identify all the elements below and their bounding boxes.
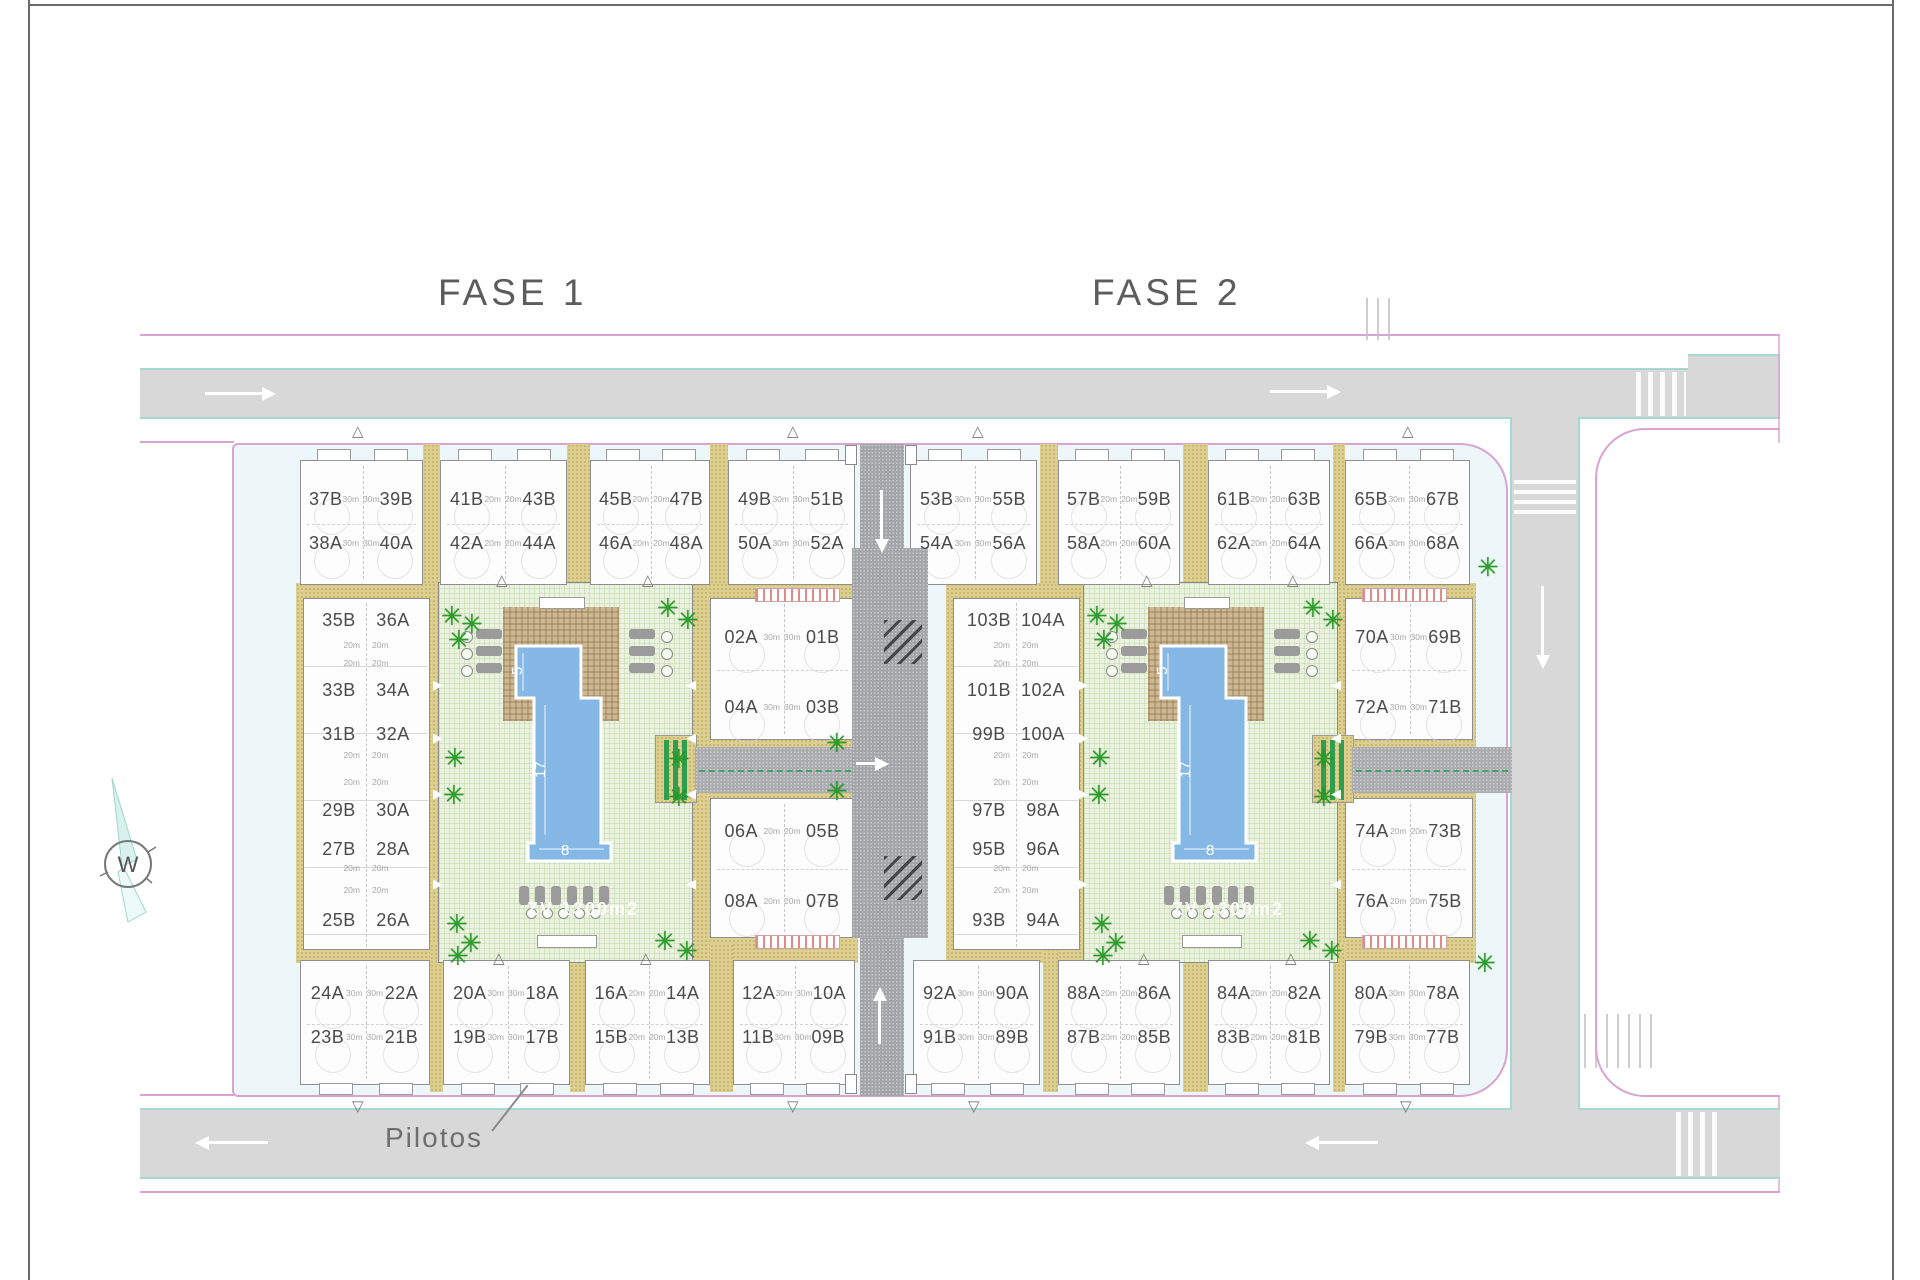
paving [1043, 944, 1058, 1092]
area-labels: 20m20m [1390, 896, 1427, 906]
pool-water [1161, 646, 1256, 861]
porch-icon [990, 1083, 1024, 1095]
pool-water [516, 646, 611, 861]
parking-marking [755, 588, 840, 602]
block-divider [505, 466, 506, 579]
area-label: 30m [1388, 494, 1405, 504]
unit-label: 95B [962, 839, 1016, 860]
gate-icon [433, 877, 443, 890]
porch-icon [374, 449, 408, 461]
unit-label: 37B [309, 489, 343, 510]
area-row: 20m20m [954, 639, 1078, 651]
unit-label: 29B [312, 800, 366, 821]
paving [423, 444, 440, 584]
area-label: 20m [1411, 826, 1428, 836]
paving [1040, 444, 1058, 584]
unit-label: 56A [992, 533, 1027, 554]
gate-icon [496, 573, 508, 588]
area-labels: 20m20m [1101, 538, 1138, 548]
pool-dimension: 5 [509, 667, 526, 675]
unit-row: 12A30m30m10A [734, 981, 853, 1005]
area-label: 20m [1101, 494, 1118, 504]
paving [710, 944, 733, 1092]
area-label: 30m [975, 538, 992, 548]
palm-icon [676, 938, 698, 964]
unit-label: 94A [1016, 910, 1070, 931]
unit-row: 15B20m20m13B [586, 1025, 708, 1049]
unit-label: 20A [452, 983, 487, 1004]
gate-icon [787, 424, 799, 439]
unit-label: 83B [1217, 1027, 1251, 1048]
porch-icon [750, 1083, 784, 1095]
area-labels: 30m30m [772, 494, 809, 504]
area-label: 20m [343, 863, 360, 873]
unit-block: 80A30m30m78A79B30m30m77B [1345, 960, 1470, 1085]
block-divider [1352, 524, 1463, 525]
paving [710, 444, 728, 584]
unit-label: 71B [1427, 697, 1463, 718]
area-label: 20m [1022, 658, 1039, 668]
strip-block: 103B104A101B102A99B100A97B98A95B96A93B94… [953, 598, 1080, 950]
area-label: 30m [343, 494, 360, 504]
area-label: 30m [508, 988, 525, 998]
area-label: 20m [1101, 1032, 1118, 1042]
area-label: 20m [628, 988, 645, 998]
unit-label: 01B [801, 627, 845, 648]
gate-icon [1078, 787, 1088, 800]
unit-label: 49B [737, 489, 772, 510]
unit-row: 83B20m20m81B [1209, 1025, 1328, 1049]
unit-row: 88A20m20m86A [1059, 981, 1178, 1005]
block-divider [447, 524, 560, 525]
unit-block: 92A30m30m90A91B30m30m89B [913, 960, 1040, 1085]
area-labels: 20m20m [1251, 538, 1288, 548]
area-label: 30m [957, 1032, 974, 1042]
unit-label: 101B [962, 680, 1016, 701]
lounger [1274, 663, 1300, 673]
unit-label: 86A [1138, 983, 1172, 1004]
gate-icon [1287, 573, 1299, 588]
site-plan: FASE 1 FASE 2 5178ZV 1300m235B36A33B34A3… [0, 0, 1920, 1280]
unit-block: 37B30m30m39B38A30m30m40A [300, 460, 423, 585]
block-divider [1120, 466, 1121, 579]
porch-icon [1281, 449, 1315, 461]
area-label: 20m [1251, 494, 1268, 504]
road-post [845, 445, 857, 465]
unit-label: 43B [522, 489, 557, 510]
unit-label: 87B [1067, 1027, 1101, 1048]
porch-icon [1225, 449, 1259, 461]
unit-label: 51B [810, 489, 845, 510]
block-divider [307, 524, 416, 525]
area-label: 20m [649, 988, 666, 998]
gate-icon [1138, 951, 1150, 966]
palm-icon [668, 746, 690, 772]
area-label: 20m [649, 1032, 666, 1042]
unit-label: 45B [599, 489, 633, 510]
area-row: 20m20m [304, 639, 428, 651]
unit-label: 72A [1354, 697, 1390, 718]
unit-label: 08A [719, 891, 763, 912]
walkway [1352, 747, 1512, 793]
unit-label: 58A [1067, 533, 1101, 554]
area-label: 20m [653, 494, 670, 504]
unit-label: 90A [995, 983, 1030, 1004]
area-label: 30m [1388, 1032, 1405, 1042]
porch-icon [806, 1083, 840, 1095]
lounger [476, 663, 502, 673]
area-label: 20m [628, 1032, 645, 1042]
unit-label: 50A [737, 533, 772, 554]
unit-label: 76A [1354, 891, 1390, 912]
unit-label: 92A [922, 983, 957, 1004]
unit-row: 99B100A [954, 722, 1078, 746]
unit-row: 61B20m20m63B [1209, 487, 1328, 511]
unit-row: 80A30m30m78A [1346, 981, 1468, 1005]
unit-label: 30A [366, 800, 420, 821]
palm-icon [826, 778, 848, 804]
palm-icon [448, 627, 470, 653]
unit-label: 69B [1427, 627, 1463, 648]
unit-row: 53B30m30m55B [911, 487, 1035, 511]
unit-row: 24A30m30m22A [301, 981, 428, 1005]
porch-icon [461, 1083, 495, 1095]
unit-label: 81B [1288, 1027, 1322, 1048]
unit-label: 84A [1217, 983, 1251, 1004]
area-label: 20m [1121, 538, 1138, 548]
porch-icon [805, 449, 839, 461]
unit-label: 68A [1426, 533, 1460, 554]
area-label: 30m [957, 988, 974, 998]
area-labels: 30m30m [954, 494, 991, 504]
block-divider [1215, 524, 1323, 525]
unit-row: 16A20m20m14A [586, 981, 708, 1005]
unit-block: 53B30m30m55B54A30m30m56A [910, 460, 1037, 585]
unit-row: 46A20m20m48A [591, 531, 708, 555]
unit-row: 25B26A [304, 908, 428, 932]
unit-row: 103B104A [954, 608, 1078, 632]
unit-label: 03B [801, 697, 845, 718]
area-label: 20m [1121, 1032, 1138, 1042]
unit-row: 08A20m20m07B [711, 889, 853, 913]
area-labels: 30m30m [343, 538, 380, 548]
area-label: 30m [763, 702, 780, 712]
unit-row: 42A20m20m44A [441, 531, 565, 555]
unit-label: 73B [1427, 821, 1463, 842]
unit-row: 97B98A [954, 798, 1078, 822]
gate-icon [1331, 731, 1341, 744]
unit-label: 103B [962, 610, 1016, 631]
area-label: 20m [1271, 538, 1288, 548]
gate-icon [433, 731, 443, 744]
garden: 5178ZV 1300m2 [1083, 582, 1338, 963]
unit-label: 39B [380, 489, 414, 510]
area-label: 20m [993, 777, 1010, 787]
palm-icon [1093, 627, 1115, 653]
gate-icon [787, 1099, 799, 1114]
block-divider [363, 466, 364, 579]
area-label: 30m [1409, 988, 1426, 998]
porch-icon [319, 1083, 353, 1095]
area-row: 20m20m [954, 776, 1078, 788]
area-label: 30m [1409, 1032, 1426, 1042]
area-label: 30m [772, 538, 789, 548]
area-label: 20m [993, 640, 1010, 650]
area-label: 20m [993, 658, 1010, 668]
unit-label: 38A [309, 533, 343, 554]
compass: W [62, 768, 232, 948]
area-labels: 30m30m [954, 538, 991, 548]
area-label: 20m [633, 494, 650, 504]
area-label: 20m [1022, 885, 1039, 895]
area-label: 30m [343, 538, 360, 548]
area-label: 20m [993, 863, 1010, 873]
unit-row: 41B20m20m43B [441, 487, 565, 511]
area-label: 20m [1390, 896, 1407, 906]
unit-label: 09B [811, 1027, 845, 1048]
lounger [1274, 646, 1300, 656]
lounger [1121, 646, 1147, 656]
area-label: 30m [487, 1032, 504, 1042]
unit-row: 87B20m20m85B [1059, 1025, 1178, 1049]
porch-icon [1075, 449, 1109, 461]
lounger [1274, 629, 1300, 639]
pool-dimension: 8 [561, 842, 569, 859]
porch-icon [1363, 1083, 1397, 1095]
unit-label: 53B [919, 489, 954, 510]
parking-marking [1362, 588, 1447, 602]
area-label: 20m [784, 896, 801, 906]
unit-label: 48A [670, 533, 704, 554]
unit-label: 55B [992, 489, 1027, 510]
unit-row: 72A30m30m71B [1346, 695, 1471, 719]
gate-icon [1141, 573, 1153, 588]
area-label: 20m [343, 658, 360, 668]
paving [1183, 944, 1208, 1092]
unit-label: 05B [801, 821, 845, 842]
pool-dimension: 17 [1177, 761, 1194, 778]
unit-label: 04A [719, 697, 763, 718]
unit-label: 21B [383, 1027, 420, 1048]
gate-icon [686, 731, 696, 744]
area-label: 20m [1121, 988, 1138, 998]
unit-label: 64A [1288, 533, 1322, 554]
unit-label: 93B [962, 910, 1016, 931]
block-divider [1352, 869, 1466, 870]
gate-icon [352, 424, 364, 439]
unit-block: 02A30m30m01B04A30m30m03B [710, 598, 855, 740]
block-divider [735, 524, 848, 525]
road-post [905, 445, 917, 465]
area-row: 20m20m [954, 884, 1078, 896]
unit-label: 22A [383, 983, 420, 1004]
unit-label: 74A [1354, 821, 1390, 842]
area-row: 20m20m [954, 749, 1078, 761]
unit-label: 28A [366, 839, 420, 860]
unit-row: 02A30m30m01B [711, 625, 853, 649]
area-label: 20m [784, 826, 801, 836]
unit-label: 13B [666, 1027, 700, 1048]
gate-icon [686, 877, 696, 890]
area-labels: 20m20m [1101, 1032, 1138, 1042]
area-label: 30m [1388, 988, 1405, 998]
area-label: 20m [484, 494, 501, 504]
parking-marking [1362, 935, 1447, 949]
unit-label: 15B [594, 1027, 628, 1048]
road-post [845, 1074, 857, 1094]
porch-icon [1075, 1083, 1109, 1095]
palm-icon [1092, 943, 1114, 969]
area-label: 30m [954, 538, 971, 548]
unit-label: 80A [1354, 983, 1388, 1004]
unit-block: 20A30m30m18A19B30m30m17B [443, 960, 570, 1085]
unit-label: 26A [366, 910, 420, 931]
porch-icon [1225, 1083, 1259, 1095]
lounger [629, 629, 655, 639]
gate-icon [968, 1099, 980, 1114]
unit-row: 76A20m20m75B [1346, 889, 1471, 913]
unit-label: 10A [813, 983, 847, 1004]
crossing-hatch [884, 856, 922, 900]
unit-label: 67B [1426, 489, 1460, 510]
unit-label: 42A [449, 533, 484, 554]
unit-label: 31B [312, 724, 366, 745]
area-label: 30m [1409, 494, 1426, 504]
gate-icon [640, 951, 652, 966]
unit-row: 04A30m30m03B [711, 695, 853, 719]
area-labels: 30m30m [346, 988, 383, 998]
green-area-label: ZV 1300m2 [1172, 899, 1284, 920]
paving [1333, 444, 1345, 584]
area-labels: 20m20m [1101, 988, 1138, 998]
unit-row: 31B32A [304, 722, 428, 746]
porch-icon [603, 1083, 637, 1095]
unit-label: 14A [666, 983, 700, 1004]
unit-label: 60A [1138, 533, 1172, 554]
area-label: 20m [1101, 988, 1118, 998]
area-labels: 30m30m [957, 1032, 994, 1042]
area-label: 30m [1411, 702, 1428, 712]
area-label: 20m [372, 750, 389, 760]
lounger [629, 646, 655, 656]
area-labels: 30m30m [346, 1032, 383, 1042]
unit-row: 29B30A [304, 798, 428, 822]
area-label: 20m [372, 640, 389, 650]
unit-row: 91B30m30m89B [914, 1025, 1038, 1049]
area-label: 30m [1411, 632, 1428, 642]
area-labels: 20m20m [633, 538, 670, 548]
unit-label: 18A [525, 983, 560, 1004]
area-row: 20m20m [304, 657, 428, 669]
unit-block: 12A30m30m10A11B30m30m09B [733, 960, 855, 1085]
porch-icon [458, 449, 492, 461]
area-label: 30m [487, 988, 504, 998]
unit-label: 96A [1016, 839, 1070, 860]
area-label: 20m [1022, 863, 1039, 873]
gate-icon [1285, 951, 1297, 966]
area-label: 20m [1101, 538, 1118, 548]
porch-icon [379, 1083, 413, 1095]
area-label: 20m [343, 885, 360, 895]
area-labels: 30m30m [487, 988, 524, 998]
unit-row: 33B34A [304, 678, 428, 702]
area-labels: 30m30m [763, 702, 800, 712]
unit-label: 61B [1217, 489, 1251, 510]
unit-row: 95B96A [954, 837, 1078, 861]
area-label: 20m [343, 777, 360, 787]
porch-icon [517, 449, 551, 461]
area-label: 20m [372, 885, 389, 895]
gate-icon [493, 951, 505, 966]
area-labels: 20m20m [1251, 494, 1288, 504]
area-label: 30m [978, 988, 995, 998]
compass-label: W [118, 852, 139, 877]
area-labels: 30m30m [1390, 702, 1427, 712]
area-label: 30m [763, 632, 780, 642]
unit-row: 06A20m20m05B [711, 819, 853, 843]
porch-icon [660, 1083, 694, 1095]
area-label: 30m [795, 1032, 812, 1042]
area-label: 20m [1411, 896, 1428, 906]
unit-block: 06A20m20m05B08A20m20m07B [710, 798, 855, 938]
unit-block: 74A20m20m73B76A20m20m75B [1345, 798, 1473, 938]
unit-label: 11B [742, 1027, 774, 1048]
unit-row: 27B28A [304, 837, 428, 861]
porch-icon [1363, 449, 1397, 461]
palm-icon [1089, 745, 1111, 771]
unit-label: 54A [919, 533, 954, 554]
palm-icon [826, 730, 848, 756]
area-labels: 20m20m [1251, 988, 1288, 998]
gate-icon [433, 787, 443, 800]
unit-label: 41B [449, 489, 484, 510]
central-road [860, 938, 904, 1096]
area-label: 20m [484, 538, 501, 548]
unit-row: 35B36A [304, 608, 428, 632]
road-arrow-up-icon [878, 1000, 881, 1044]
area-labels: 20m20m [1251, 1032, 1288, 1042]
area-labels: 20m20m [1101, 494, 1138, 504]
lounger [1121, 663, 1147, 673]
area-labels: 30m30m [957, 988, 994, 998]
area-label: 30m [774, 1032, 791, 1042]
palm-icon [1302, 595, 1324, 621]
unit-row: 54A30m30m56A [911, 531, 1035, 555]
block-divider [304, 934, 428, 935]
palm-icon [443, 782, 465, 808]
area-label: 20m [993, 750, 1010, 760]
area-label: 20m [1251, 988, 1268, 998]
unit-row: 38A30m30m40A [301, 531, 421, 555]
pool-dimension: 8 [1206, 842, 1214, 859]
porch-icon [1281, 1083, 1315, 1095]
area-row: 20m20m [304, 884, 428, 896]
area-row: 20m20m [304, 749, 428, 761]
unit-label: 07B [801, 891, 845, 912]
area-label: 20m [372, 863, 389, 873]
pilotos-label: Pilotos [385, 1122, 483, 1154]
parasol-icon [1306, 665, 1318, 677]
unit-label: 32A [366, 724, 420, 745]
palm-icon [657, 595, 679, 621]
unit-block: 84A20m20m82A83B20m20m81B [1208, 960, 1330, 1085]
area-label: 20m [1022, 777, 1039, 787]
area-label: 20m [1022, 640, 1039, 650]
porch-icon [987, 449, 1021, 461]
gate-icon [972, 424, 984, 439]
unit-label: 12A [742, 983, 776, 1004]
unit-label: 66A [1354, 533, 1388, 554]
